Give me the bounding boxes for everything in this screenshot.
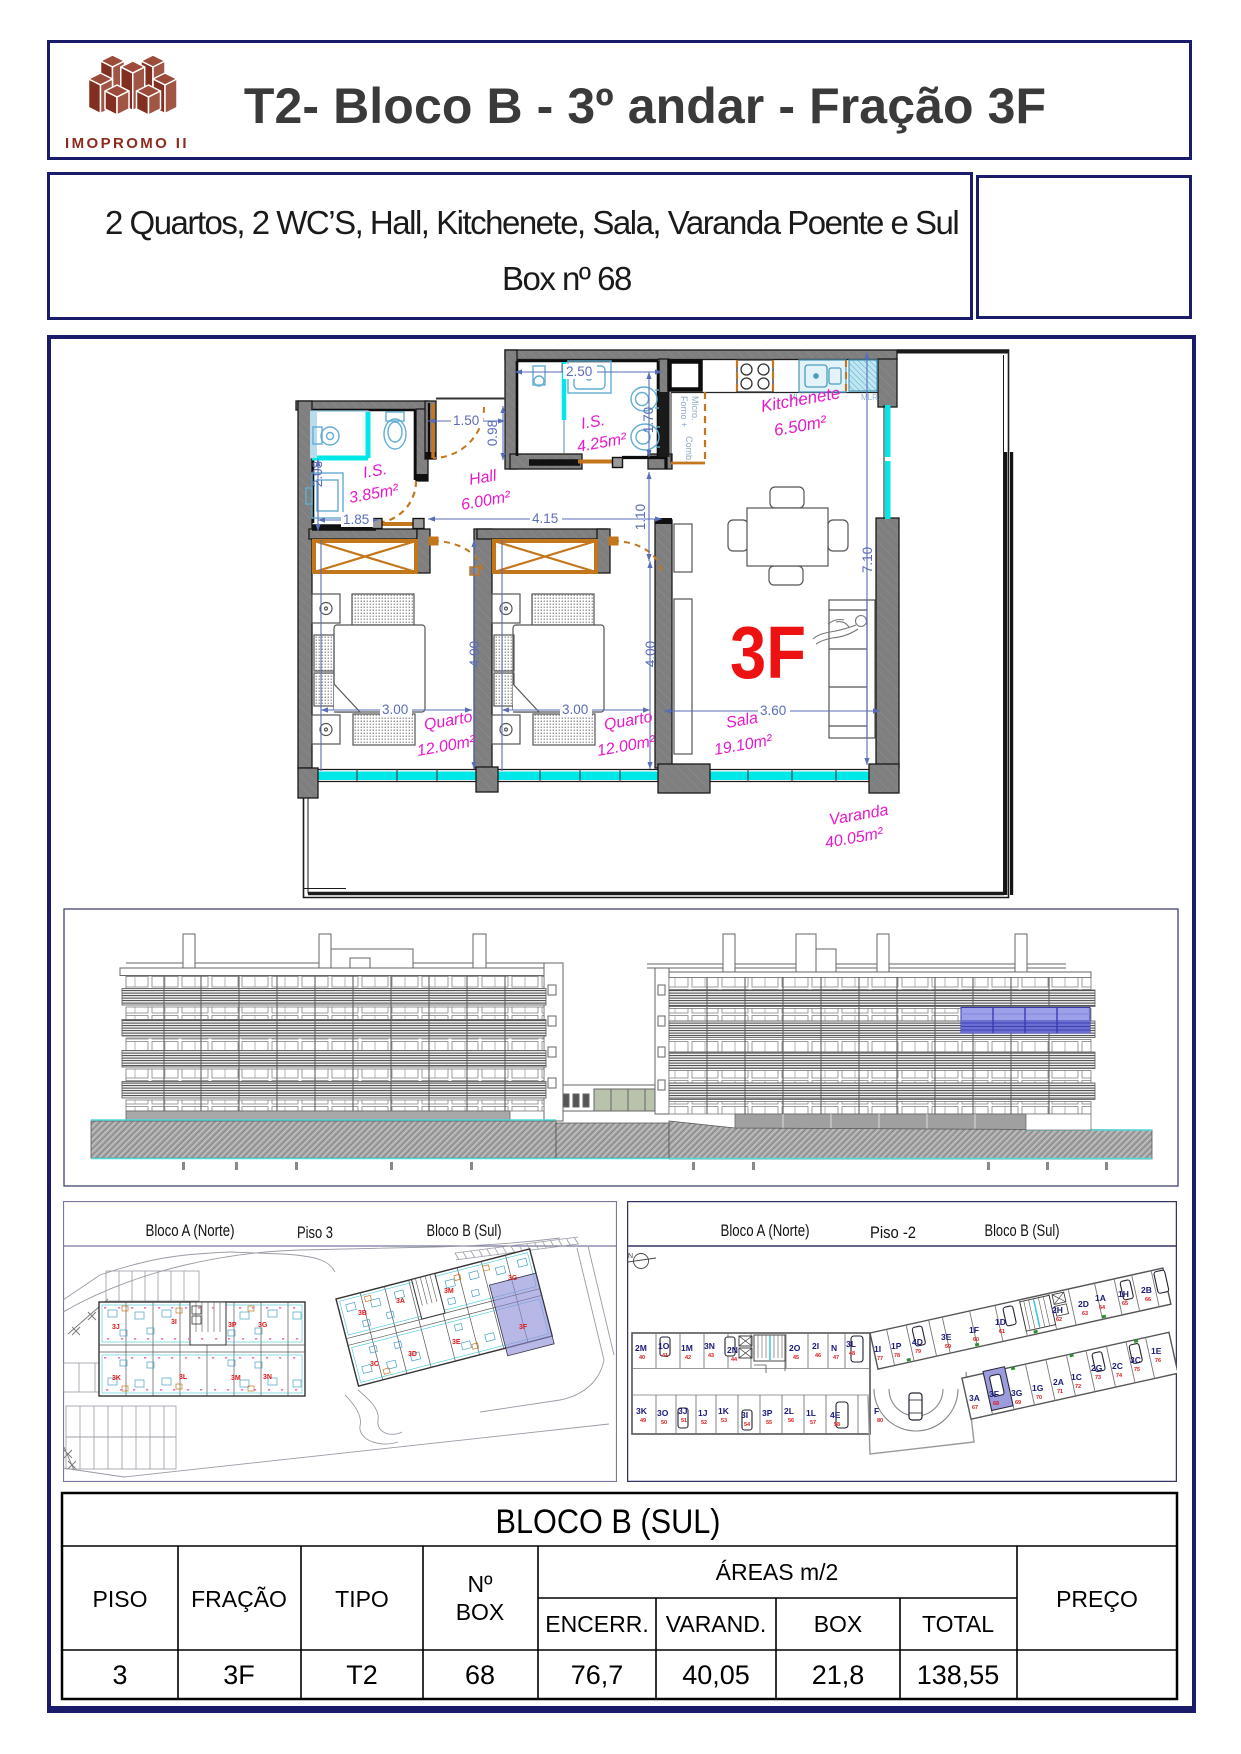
svg-text:66: 66 (1145, 1297, 1151, 1303)
svg-text:4.25m²: 4.25m² (576, 430, 629, 456)
svg-text:Piso -2: Piso -2 (870, 1223, 916, 1242)
svg-text:3J: 3J (678, 1406, 688, 1416)
svg-text:3P: 3P (762, 1408, 773, 1418)
svg-text:F: F (874, 1406, 879, 1416)
svg-text:47: 47 (833, 1355, 839, 1361)
svg-text:BLOCO B (SUL): BLOCO B (SUL) (496, 1503, 721, 1541)
svg-text:3C: 3C (1130, 1355, 1141, 1365)
svg-text:75: 75 (1134, 1367, 1140, 1373)
svg-text:Comb.: Comb. (684, 436, 694, 463)
svg-text:Bloco B (Sul): Bloco B (Sul) (985, 1221, 1060, 1240)
svg-text:68: 68 (993, 1401, 999, 1407)
svg-text:3F: 3F (989, 1389, 999, 1399)
svg-text:3L: 3L (846, 1339, 856, 1349)
svg-text:Sala: Sala (725, 710, 760, 732)
svg-text:53: 53 (721, 1418, 727, 1424)
svg-text:3K: 3K (636, 1406, 648, 1416)
svg-text:0.98: 0.98 (485, 420, 500, 446)
svg-text:3G: 3G (508, 1275, 518, 1282)
svg-text:BOX: BOX (814, 1611, 863, 1637)
svg-text:2I: 2I (812, 1341, 819, 1351)
svg-text:3N: 3N (704, 1341, 715, 1351)
svg-text:59: 59 (945, 1344, 951, 1350)
svg-text:1D: 1D (995, 1317, 1006, 1327)
svg-text:3: 3 (112, 1660, 127, 1690)
svg-text:49: 49 (640, 1418, 646, 1424)
svg-text:4.00: 4.00 (643, 641, 658, 667)
svg-text:3E: 3E (941, 1332, 952, 1342)
svg-text:72: 72 (1075, 1384, 1081, 1390)
svg-text:40: 40 (639, 1355, 645, 1361)
svg-text:3C: 3C (370, 1361, 379, 1368)
svg-text:6.00m²: 6.00m² (460, 488, 513, 514)
svg-text:65: 65 (1122, 1301, 1128, 1307)
svg-text:3.85m²: 3.85m² (348, 481, 401, 507)
svg-text:68: 68 (465, 1660, 495, 1690)
svg-text:2O: 2O (789, 1343, 801, 1353)
svg-text:12.00m²: 12.00m² (416, 733, 477, 760)
svg-text:61: 61 (999, 1329, 1005, 1335)
svg-text:3F: 3F (730, 611, 806, 694)
svg-text:1.85: 1.85 (343, 512, 369, 527)
svg-text:4E: 4E (830, 1410, 841, 1420)
svg-text:Micro.: Micro. (690, 396, 700, 421)
svg-text:57: 57 (810, 1420, 816, 1426)
svg-text:2L: 2L (784, 1406, 794, 1416)
svg-text:2.08: 2.08 (310, 461, 325, 487)
svg-text:Bloco B (Sul): Bloco B (Sul) (427, 1221, 502, 1240)
svg-text:56: 56 (788, 1418, 794, 1424)
svg-text:64: 64 (1099, 1305, 1106, 1311)
svg-text:52: 52 (701, 1420, 707, 1426)
svg-text:51: 51 (681, 1418, 687, 1424)
svg-text:I.S.: I.S. (580, 412, 607, 433)
svg-text:3M: 3M (444, 1288, 454, 1295)
svg-text:PREÇO: PREÇO (1056, 1586, 1138, 1612)
svg-text:1G: 1G (1032, 1383, 1044, 1393)
svg-text:40,05: 40,05 (682, 1660, 750, 1690)
svg-text:54: 54 (744, 1422, 751, 1428)
svg-text:41: 41 (662, 1353, 668, 1359)
svg-text:1C: 1C (1071, 1372, 1082, 1382)
svg-text:MLR.: MLR. (861, 393, 880, 402)
svg-text:3B: 3B (358, 1310, 367, 1317)
svg-text:3K: 3K (112, 1375, 121, 1382)
svg-text:2C: 2C (1112, 1361, 1123, 1371)
svg-text:Piso 3: Piso 3 (297, 1223, 333, 1242)
svg-text:3G: 3G (258, 1322, 268, 1329)
svg-text:N: N (628, 1253, 633, 1260)
svg-text:1K: 1K (718, 1406, 730, 1416)
svg-text:21,8: 21,8 (812, 1660, 865, 1690)
svg-text:IMOPROMO II: IMOPROMO II (65, 135, 189, 152)
svg-text:46: 46 (815, 1353, 821, 1359)
svg-text:TIPO: TIPO (335, 1586, 389, 1612)
svg-text:N: N (831, 1343, 837, 1353)
svg-text:74: 74 (1116, 1373, 1123, 1379)
svg-text:BOX: BOX (456, 1599, 505, 1625)
svg-text:1A: 1A (1095, 1293, 1106, 1303)
svg-text:3J: 3J (112, 1324, 120, 1331)
svg-text:1M: 1M (681, 1343, 693, 1353)
svg-text:T2: T2 (346, 1660, 378, 1690)
svg-text:1J: 1J (698, 1408, 708, 1418)
svg-text:2A: 2A (1053, 1377, 1064, 1387)
svg-text:3.00: 3.00 (382, 702, 408, 717)
svg-text:1.10: 1.10 (633, 504, 648, 530)
svg-text:3F: 3F (519, 1324, 528, 1331)
svg-text:3I: 3I (741, 1410, 748, 1420)
svg-text:TOTAL: TOTAL (922, 1611, 994, 1637)
svg-text:73: 73 (1095, 1375, 1101, 1381)
svg-text:7.10: 7.10 (860, 547, 875, 573)
svg-text:1.50: 1.50 (453, 413, 479, 428)
svg-text:I.S.: I.S. (362, 461, 389, 482)
svg-text:138,55: 138,55 (917, 1660, 1000, 1690)
svg-text:3N: 3N (263, 1374, 272, 1381)
svg-text:Quarto: Quarto (603, 709, 654, 734)
svg-text:4.15: 4.15 (532, 511, 558, 526)
svg-text:1F: 1F (969, 1325, 979, 1335)
svg-text:4.00: 4.00 (467, 641, 482, 667)
svg-text:3D: 3D (408, 1351, 417, 1358)
svg-text:1E: 1E (1151, 1346, 1162, 1356)
svg-text:3.00: 3.00 (562, 702, 588, 717)
svg-text:PISO: PISO (93, 1586, 148, 1612)
svg-text:62: 62 (1056, 1317, 1062, 1323)
svg-text:76,7: 76,7 (571, 1660, 624, 1690)
svg-text:76: 76 (1155, 1358, 1161, 1364)
svg-text:3M: 3M (231, 1375, 241, 1382)
svg-text:FRAÇÃO: FRAÇÃO (191, 1586, 287, 1612)
svg-text:ENCERR.: ENCERR. (545, 1611, 649, 1637)
svg-text:1L: 1L (806, 1408, 816, 1418)
svg-text:3E: 3E (452, 1339, 461, 1346)
svg-text:2.50: 2.50 (566, 364, 592, 379)
svg-text:63: 63 (1082, 1311, 1088, 1317)
svg-text:77: 77 (877, 1356, 883, 1362)
svg-text:43: 43 (708, 1353, 714, 1359)
svg-text:VARAND.: VARAND. (666, 1611, 767, 1637)
svg-text:2H: 2H (1052, 1305, 1063, 1315)
svg-text:55: 55 (766, 1420, 772, 1426)
svg-text:Nº: Nº (467, 1571, 493, 1597)
svg-text:Bloco A (Norte): Bloco A (Norte) (146, 1221, 235, 1240)
svg-text:3A: 3A (969, 1393, 980, 1403)
svg-text:2N: 2N (727, 1345, 738, 1355)
svg-text:Quarto: Quarto (423, 709, 474, 734)
svg-text:60: 60 (973, 1337, 979, 1343)
svg-text:67: 67 (972, 1405, 978, 1411)
svg-text:1H: 1H (1118, 1289, 1129, 1299)
svg-text:3F: 3F (223, 1660, 255, 1690)
svg-text:2D: 2D (1078, 1299, 1089, 1309)
svg-text:50: 50 (661, 1420, 667, 1426)
svg-text:78: 78 (894, 1353, 900, 1359)
svg-text:4D: 4D (912, 1337, 923, 1347)
svg-text:2G: 2G (1091, 1363, 1103, 1373)
svg-text:3A: 3A (396, 1298, 405, 1305)
svg-text:3G: 3G (1011, 1388, 1023, 1398)
svg-text:2M: 2M (635, 1343, 647, 1353)
svg-text:Bloco A (Norte): Bloco A (Norte) (721, 1221, 810, 1240)
svg-text:40.05m²: 40.05m² (824, 825, 885, 852)
svg-text:ÁREAS m/2: ÁREAS m/2 (716, 1559, 839, 1585)
svg-text:42: 42 (685, 1355, 691, 1361)
svg-text:3.60: 3.60 (760, 703, 786, 718)
svg-text:3P: 3P (228, 1322, 237, 1329)
svg-text:6.50m²: 6.50m² (772, 412, 829, 440)
svg-text:1.70: 1.70 (641, 407, 656, 433)
svg-text:80: 80 (877, 1418, 883, 1424)
svg-text:3O: 3O (657, 1408, 669, 1418)
svg-text:Forno +: Forno + (679, 396, 689, 427)
svg-text:45: 45 (793, 1355, 799, 1361)
svg-text:70: 70 (1036, 1395, 1042, 1401)
svg-text:3L: 3L (179, 1374, 188, 1381)
svg-text:Hall: Hall (468, 467, 499, 489)
svg-text:44: 44 (731, 1357, 738, 1363)
svg-text:48: 48 (849, 1351, 855, 1357)
svg-text:79: 79 (915, 1349, 921, 1355)
svg-text:3I: 3I (171, 1319, 177, 1326)
svg-text:12.00m²: 12.00m² (596, 733, 657, 760)
svg-text:71: 71 (1057, 1389, 1063, 1395)
svg-text:1O: 1O (658, 1341, 670, 1351)
svg-text:69: 69 (1015, 1400, 1021, 1406)
svg-text:19.10m²: 19.10m² (713, 732, 774, 759)
svg-text:1P: 1P (891, 1341, 902, 1351)
svg-text:58: 58 (834, 1422, 840, 1428)
svg-text:1I: 1I (874, 1344, 881, 1354)
svg-text:2B: 2B (1141, 1285, 1152, 1295)
